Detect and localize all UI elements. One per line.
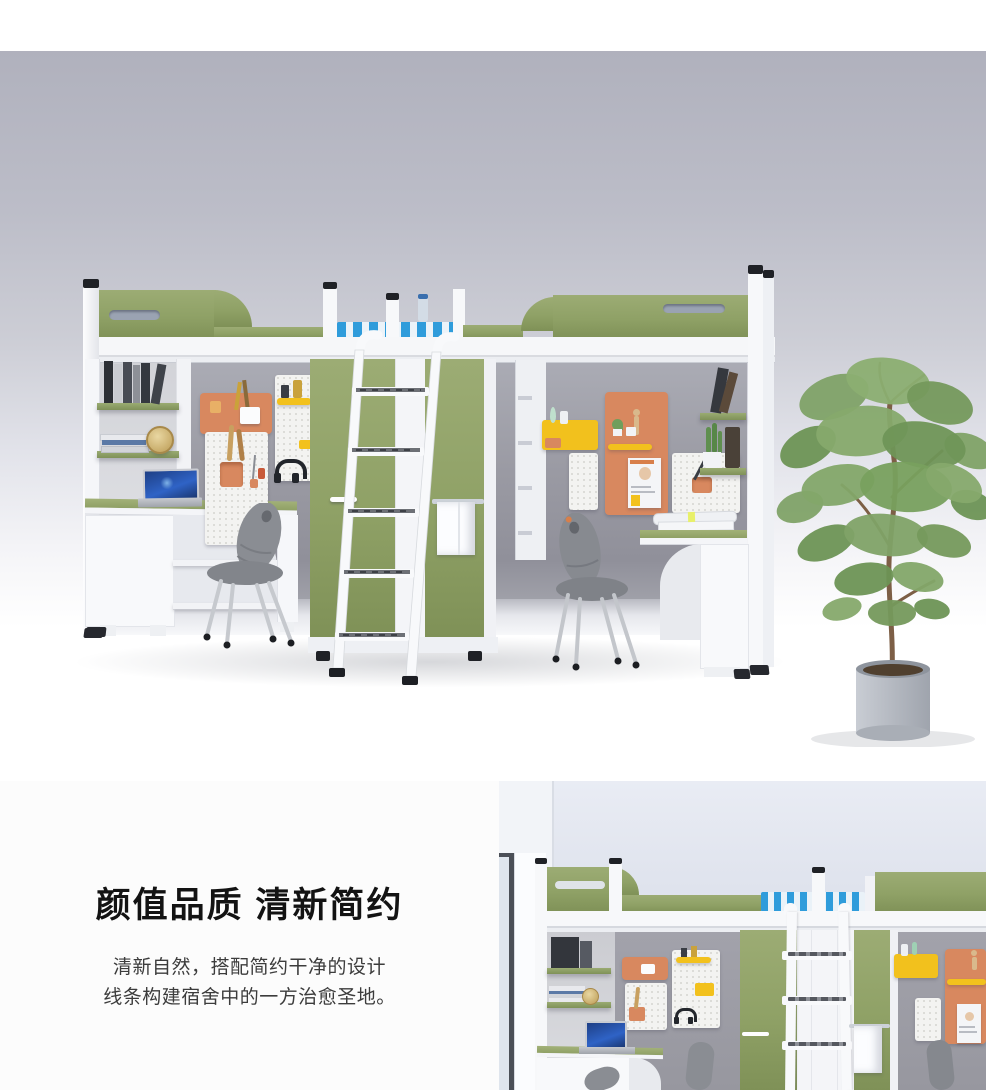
book-flat: [102, 440, 146, 445]
headboard-right-step: [521, 297, 555, 331]
detail-shelf-2: [547, 1002, 611, 1008]
red-pin: [258, 468, 265, 479]
info-panel: 颜值品质 清新简约 清新自然，搭配简约干净的设计 线条构建宿舍中的一方治愈圣地。: [0, 781, 499, 1090]
wall-shelf-right-2: [700, 468, 746, 475]
bed-post-mid-left-cap: [323, 282, 337, 289]
book-spine: [104, 361, 113, 403]
headboard-left-step: [214, 290, 252, 327]
detail-bed-deck: [535, 911, 986, 928]
tray-orange-small: [545, 438, 561, 448]
detail-left-post-cap: [535, 858, 547, 864]
detail-books-stack: [549, 986, 585, 1002]
bed-post-right-cap: [748, 265, 763, 274]
bed-ladder: [320, 327, 460, 689]
headphone-cup: [274, 473, 281, 483]
headphone-cup: [292, 473, 299, 483]
detail-headboard-tall: [545, 867, 611, 913]
mannequin-head: [633, 409, 640, 416]
headboard-left-slot: [109, 310, 160, 320]
desk-foot: [150, 625, 166, 636]
cactus-pot: [703, 452, 721, 468]
books-stack: [100, 434, 148, 451]
detail-shelf-yellow-2: [947, 979, 986, 985]
detail-magazine: [957, 1004, 981, 1043]
book-spine: [141, 363, 150, 403]
detail-magazine-face: [965, 1012, 974, 1021]
detail-pocket-yellow: [695, 983, 714, 996]
dark-sculpture: [725, 427, 740, 468]
magazine-text-line: [631, 491, 655, 493]
hero-photo: [0, 51, 986, 781]
detail-towel: [854, 1026, 882, 1073]
white-bottle: [560, 411, 568, 424]
detail-tool: [681, 948, 687, 957]
gold-clamp: [293, 380, 302, 398]
detail-mint-sprig: [912, 942, 917, 955]
detail-ladder-tread: [782, 996, 852, 1005]
pegboard-white-c: [569, 453, 598, 510]
detail-mannequin-body: [972, 957, 977, 970]
mini-plant-pot: [613, 429, 622, 436]
detail-center-post: [812, 872, 825, 913]
detail-pocket-orange: [629, 1007, 645, 1021]
desk-left-pedestal: [85, 515, 175, 627]
desk-right-foot-dark: [733, 669, 750, 679]
section-body-line-1: 清新自然，搭配简约干净的设计: [0, 953, 499, 983]
laptop-base: [138, 497, 202, 507]
bed-post-right-foot: [749, 665, 769, 675]
open-shelf-slot: [518, 396, 532, 400]
detail-book-box: [551, 937, 579, 968]
headboard-right-tall: [553, 295, 748, 339]
magazine-masthead: [630, 460, 654, 464]
wardrobe-foot: [468, 651, 482, 661]
books-row: [104, 361, 172, 403]
pegboard-pocket-orange: [220, 462, 243, 487]
open-shelf-slot: [518, 531, 532, 535]
bed-post-center-cap: [386, 293, 399, 300]
detail-tool-gold: [691, 946, 697, 957]
detail-shelf-1: [547, 968, 611, 974]
desk-right-panel: [700, 544, 749, 669]
detail-ladder-tread: [782, 1041, 852, 1050]
magazine: [628, 458, 661, 508]
detail-headboard-right: [875, 872, 986, 913]
detail-headphone-cup: [688, 1017, 693, 1024]
potted-plant: [772, 347, 986, 747]
magazine-highlight: [631, 495, 640, 506]
detail-pegboard-yellow: [894, 954, 938, 978]
detail-mannequin-head: [971, 950, 977, 956]
newspaper-highlight: [688, 512, 695, 522]
desk-foot-dark: [85, 627, 106, 637]
detail-laptop-base: [579, 1047, 635, 1054]
detail-pegboard-white-c: [915, 998, 941, 1041]
open-shelf-slot: [518, 486, 532, 490]
wall-shelf-right-1: [700, 413, 746, 420]
pegboard-tray: [240, 407, 260, 424]
book-flat: [101, 446, 149, 453]
detail-bottle: [901, 944, 908, 956]
detail-magazine-line: [959, 1031, 977, 1033]
window-frame-top: [499, 853, 514, 857]
detail-wardrobe-handle: [742, 1032, 769, 1036]
book-spine: [133, 365, 140, 403]
washi-tape: [210, 401, 221, 413]
section-body-line-2: 线条构建宿舍中的一方治愈圣地。: [0, 983, 499, 1013]
book-spine-leaning: [151, 364, 167, 405]
bed-post-right-outer: [748, 271, 763, 671]
detail-clock: [582, 988, 599, 1005]
alarm-clock: [146, 426, 174, 454]
cactus: [706, 427, 711, 453]
tool-cup: [281, 385, 289, 398]
white-jar: [626, 427, 636, 436]
feather-decor: [550, 407, 556, 423]
detail-headphone-cup: [674, 1017, 679, 1024]
plug-orange: [250, 479, 258, 488]
magazine-face: [639, 467, 651, 480]
desk-right-top: [640, 530, 747, 538]
detail-photo: [499, 781, 986, 1090]
bed-post-left-cap: [83, 279, 99, 288]
detail-notch-post-cap: [609, 858, 622, 864]
headboard-right-slot: [663, 304, 725, 313]
cactus: [712, 423, 717, 453]
detail-magazine-line: [959, 1026, 975, 1028]
wardrobe-edge: [484, 359, 496, 637]
detail-ladder-tread: [782, 951, 852, 960]
display-shelf-yellow: [608, 444, 652, 450]
chair-right: [542, 513, 654, 673]
detail-chair-back-mid: [685, 1041, 716, 1090]
chair-left: [195, 503, 313, 653]
section-heading: 颜值品质 清新简约: [0, 884, 499, 928]
detail-shelf-yellow: [676, 957, 711, 963]
laptop-logo-glow: [160, 477, 174, 489]
bed-post-right-b-cap: [763, 270, 774, 278]
detail-tray: [641, 964, 655, 974]
cactus: [718, 431, 722, 453]
book-spine: [123, 362, 132, 403]
detail-notch-post: [609, 863, 622, 913]
magazine-text-line: [631, 486, 651, 488]
detail-center-post-cap: [812, 867, 825, 873]
book-spine: [114, 364, 122, 403]
detail-post-2: [865, 876, 875, 913]
pegboard-shelf-yellow: [277, 398, 311, 405]
water-bottle-cap: [418, 294, 428, 299]
detail-headboard-slot: [555, 881, 605, 889]
detail-book: [580, 941, 592, 968]
wall-shelf-1: [97, 403, 179, 410]
product-detail-page: 颜值品质 清新简约 清新自然，搭配简约干净的设计 线条构建宿舍中的一方治愈圣地。: [0, 0, 986, 1090]
open-shelf-slot: [518, 441, 532, 445]
